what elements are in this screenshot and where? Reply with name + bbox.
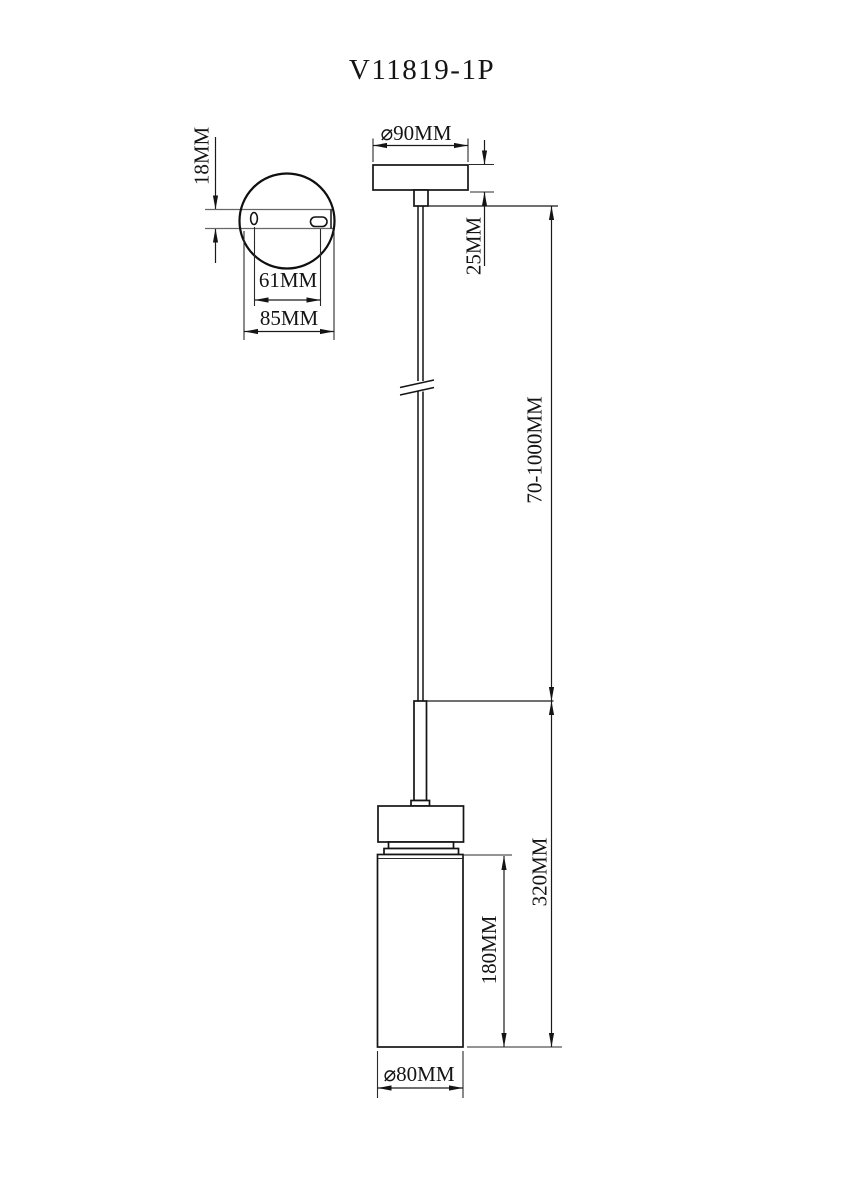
lamp-cap <box>378 806 464 842</box>
mounting-hole-left <box>251 213 258 225</box>
dim-plate-thickness: 18MM <box>190 127 214 186</box>
dim-hole-spacing: 61MM <box>259 268 318 292</box>
lamp-ring-upper <box>389 842 454 849</box>
lamp-ring-lower <box>384 849 459 855</box>
dim-canopy-height: 25MM <box>462 217 486 276</box>
lamp-shade <box>378 855 464 1048</box>
side-view: ⌀90MM 25MM 70-1000MM <box>373 121 562 1098</box>
mounting-hole-right <box>311 217 328 227</box>
dim-suspension-length: 70-1000MM <box>523 396 547 504</box>
dim-shade-diameter: ⌀80MM <box>384 1062 455 1086</box>
rod-break-symbol <box>400 380 434 395</box>
technical-drawing-canvas: V11819-1P 18MM 61MM 85MM ⌀90MM <box>0 0 848 1200</box>
top-view: 18MM 61MM 85MM <box>190 127 335 340</box>
dim-plate-width: 85MM <box>260 306 319 330</box>
dim-shade-height: 180MM <box>477 915 501 984</box>
dim-canopy-diameter: ⌀90MM <box>381 121 452 145</box>
canopy-body <box>373 165 468 190</box>
drawing-page: V11819-1P 18MM 61MM 85MM ⌀90MM <box>0 0 848 1200</box>
lamp-tube <box>414 701 427 801</box>
dim-fixture-height: 320MM <box>528 837 552 906</box>
canopy-stem <box>414 190 428 206</box>
drawing-title: V11819-1P <box>349 54 495 86</box>
